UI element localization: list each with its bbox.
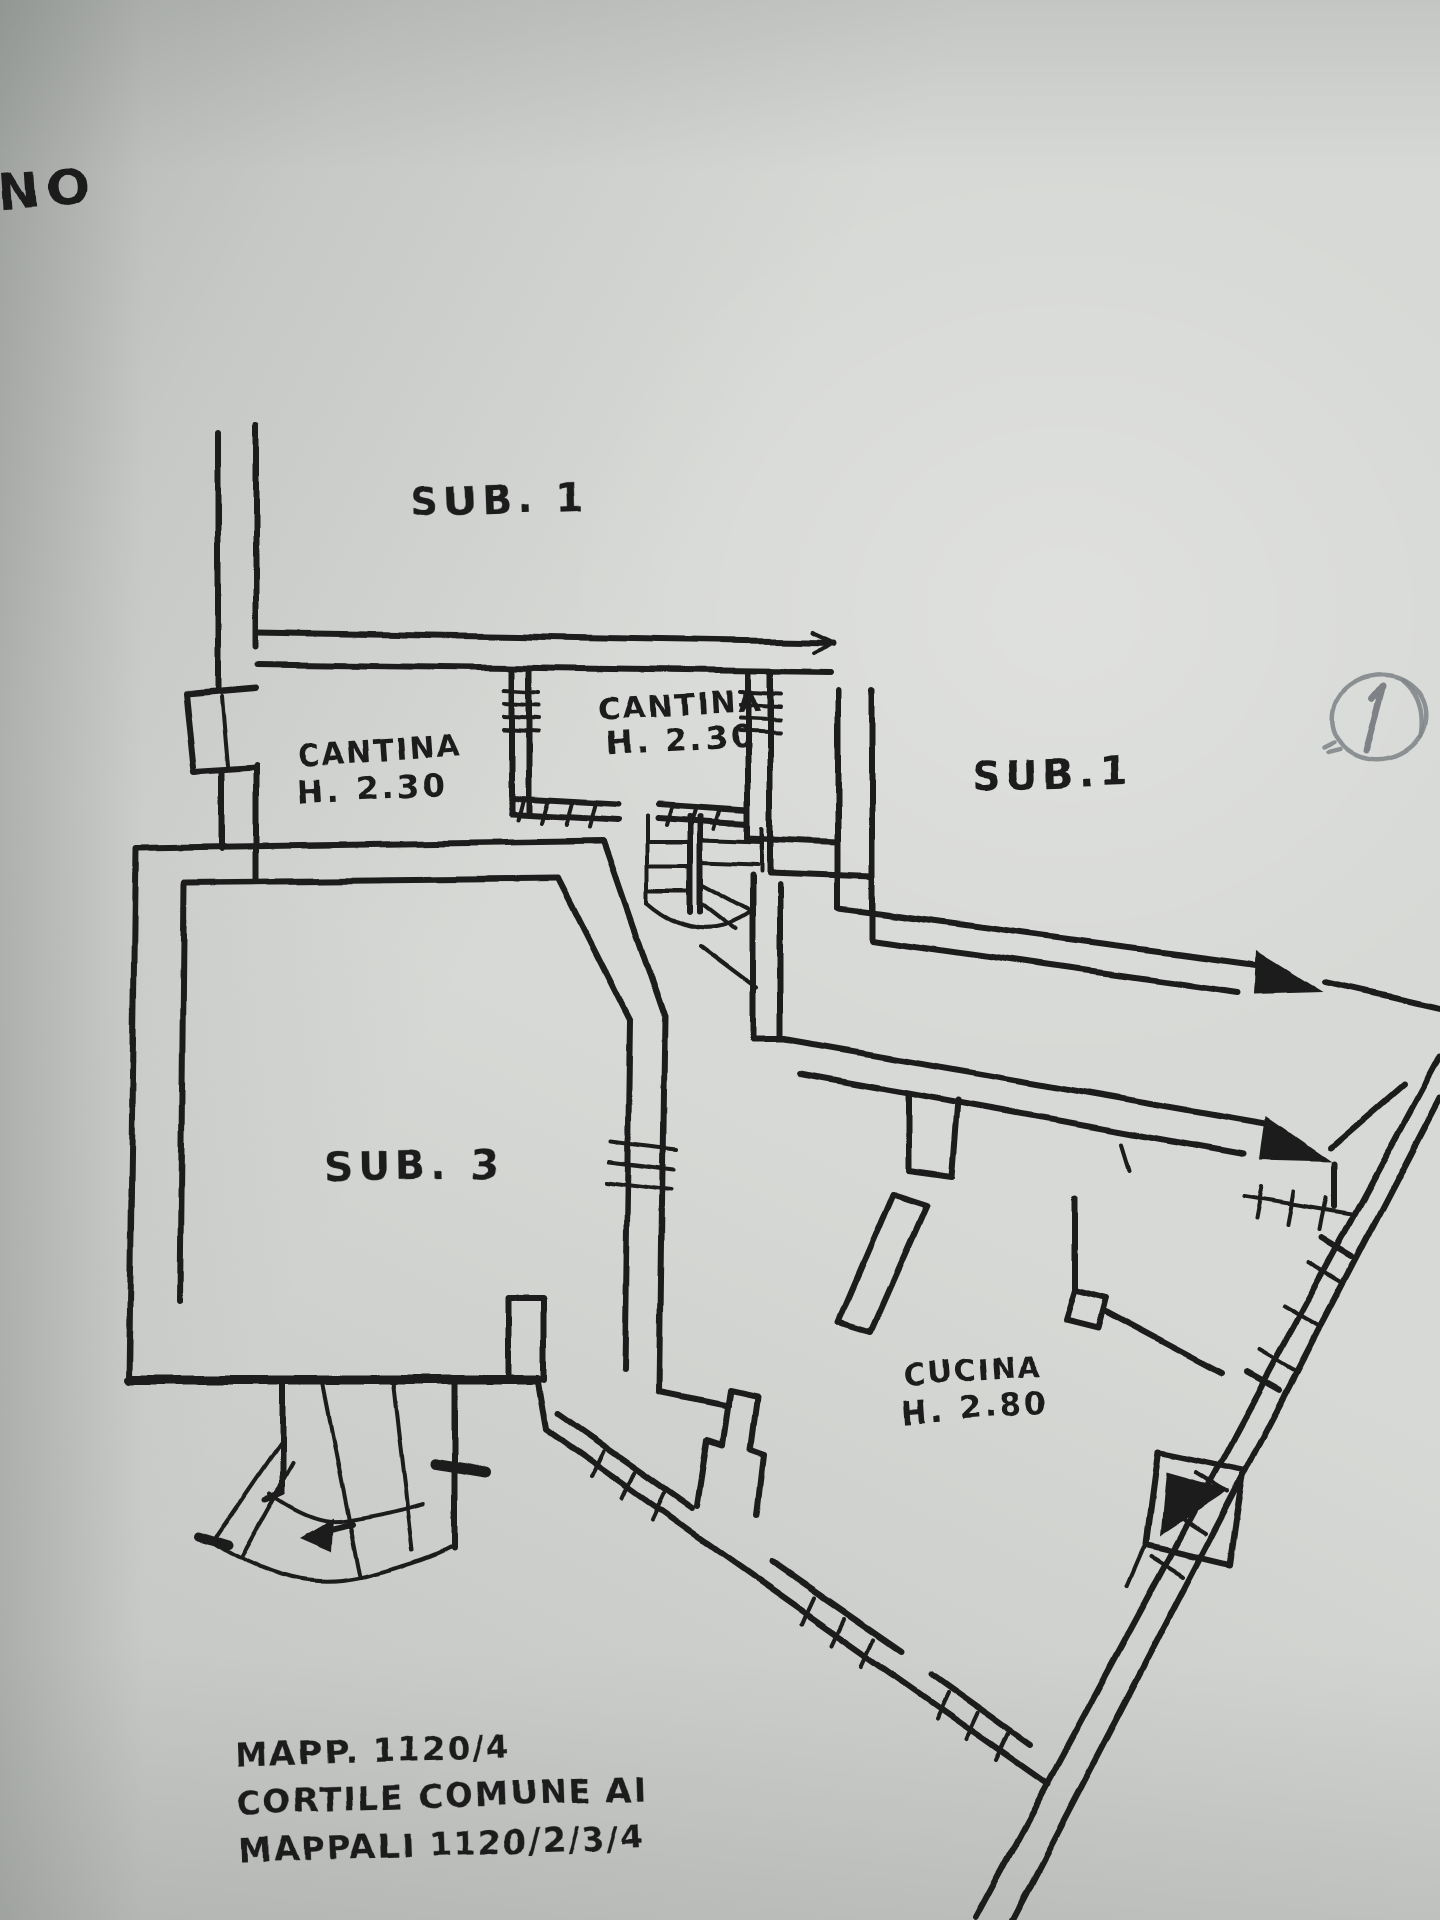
scanned-floor-plan-page: ENO SUB. 1 CANTINA H. 2.30 CANTINA H. 2.… — [0, 0, 1440, 1920]
cucina-walls — [753, 874, 1404, 1230]
cut-off-word-fragment: ENO — [0, 157, 96, 224]
label-cantina-right-height: H. 2.30 — [605, 718, 757, 764]
label-sub1-top: SUB. 1 — [409, 474, 589, 526]
door-marker-triangle-lower — [1260, 1116, 1332, 1162]
floor-plan-drawing: ENO SUB. 1 CANTINA H. 2.30 CANTINA H. 2.… — [0, 0, 1440, 1920]
footer-line3: MAPPALI 1120/2/3/4 — [238, 1818, 646, 1871]
sub3-room-walls — [129, 841, 728, 1406]
footer-line2: CORTILE COMUNE AI — [236, 1769, 649, 1822]
footer-line1: MAPP. 1120/4 — [235, 1726, 512, 1775]
footer-note: MAPP. 1120/4 CORTILE COMUNE AI MAPPALI 1… — [235, 1721, 651, 1870]
label-sub1-right: SUB.1 — [971, 749, 1132, 801]
fan-staircase — [199, 1378, 486, 1582]
label-cantina-left-height: H. 2.30 — [296, 766, 448, 812]
cucina-southwest-wall — [538, 1382, 1048, 1784]
pencil-sheet-number — [1324, 666, 1434, 768]
pencil-digit-1 — [1366, 686, 1383, 750]
wall-step-protrusion — [697, 1390, 764, 1514]
label-sub3: SUB. 3 — [324, 1142, 504, 1191]
sub3-pilaster — [508, 1298, 544, 1380]
plan-annotations: ENO SUB. 1 CANTINA H. 2.30 CANTINA H. 2.… — [0, 157, 1133, 1871]
pencil-scribble — [1324, 742, 1340, 752]
freestanding-wall — [838, 1194, 927, 1332]
pencil-circle — [1324, 666, 1433, 768]
chimney-notch — [908, 1094, 958, 1176]
door-marker-triangle-upper — [1254, 950, 1324, 994]
central-staircase — [647, 816, 762, 988]
